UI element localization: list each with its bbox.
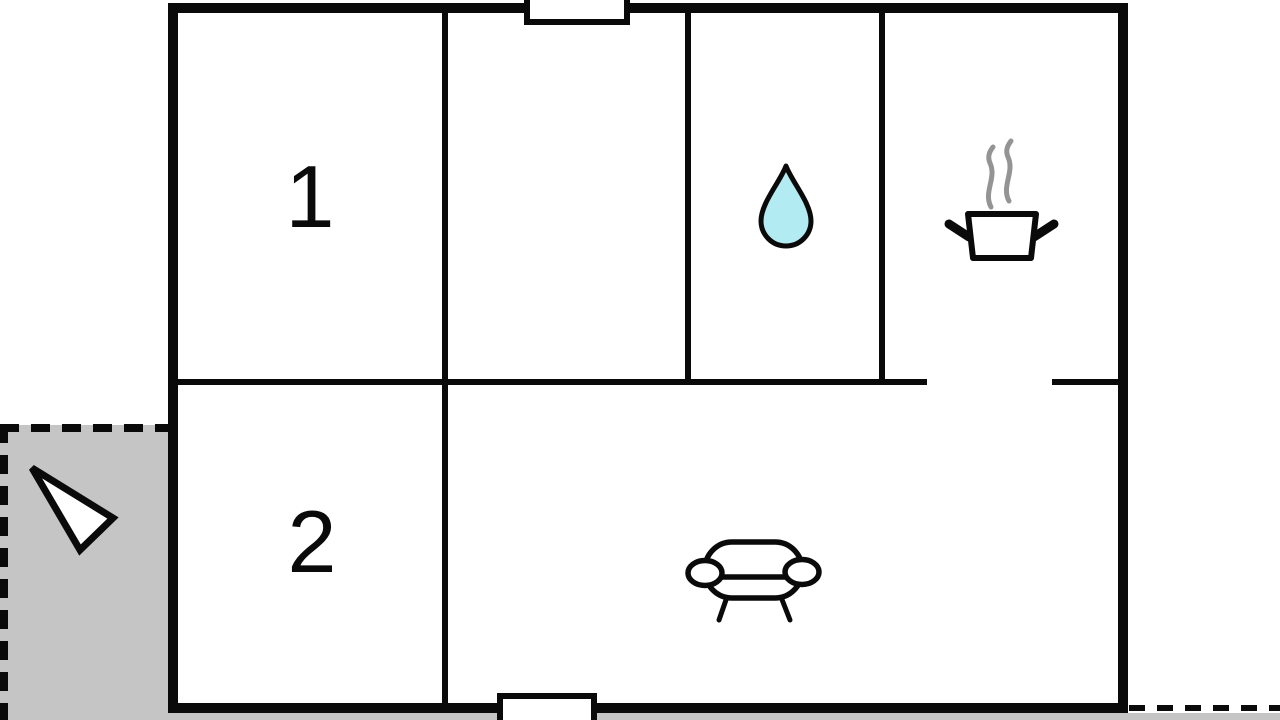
room-1-label: 1 [286, 147, 335, 246]
sofa-armrest-left [688, 561, 722, 586]
sofa-armrest-right [785, 560, 819, 585]
floor-plan-canvas: 1 2 [0, 0, 1280, 720]
pot-body [968, 214, 1036, 258]
door-opening-top [527, 0, 627, 22]
door-opening-bottom [500, 696, 594, 720]
floor-plan-image: 1 2 [0, 0, 1280, 720]
exterior-wall [173, 8, 1123, 708]
room-2-label: 2 [288, 492, 337, 591]
